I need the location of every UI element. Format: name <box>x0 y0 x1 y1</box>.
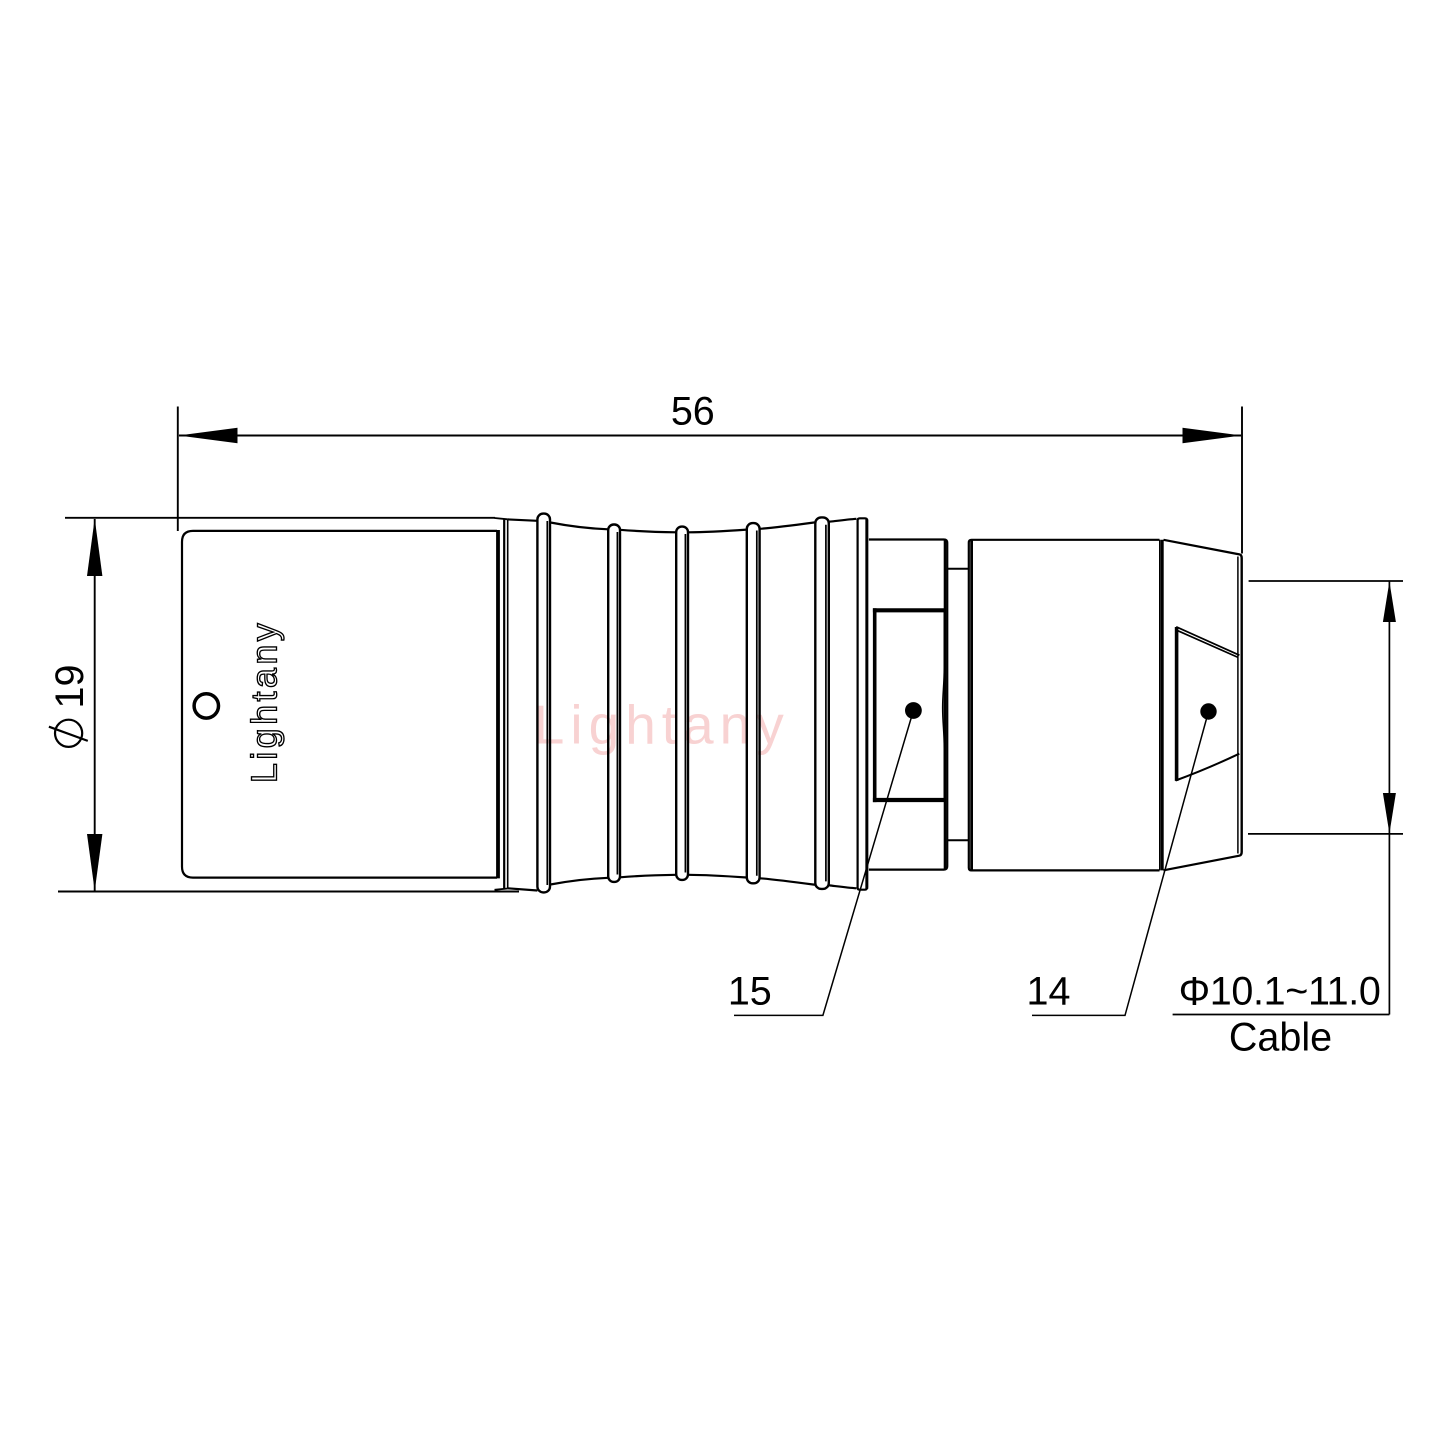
svg-text:Cable: Cable <box>1229 1016 1332 1060</box>
svg-text:19: 19 <box>48 665 92 709</box>
svg-text:14: 14 <box>1027 969 1071 1013</box>
svg-text:Φ10.1~11.0: Φ10.1~11.0 <box>1179 970 1381 1014</box>
svg-text:Lightany: Lightany <box>244 620 285 783</box>
svg-text:56: 56 <box>671 390 715 434</box>
svg-text:15: 15 <box>728 969 772 1013</box>
svg-text:Lightany: Lightany <box>534 694 790 756</box>
